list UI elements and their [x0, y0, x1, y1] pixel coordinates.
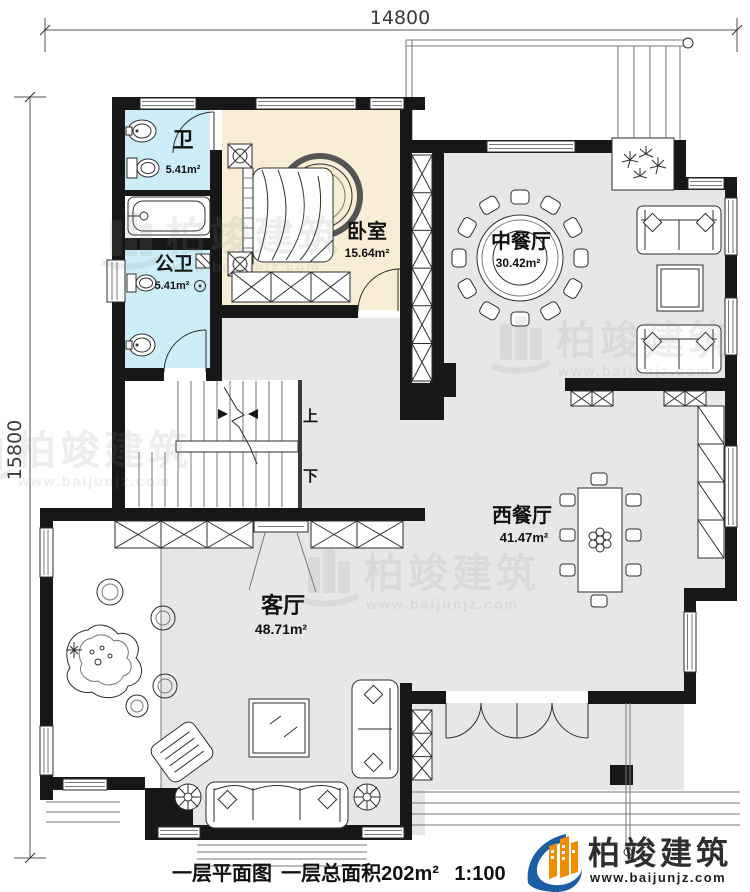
toilet: [127, 158, 159, 178]
shaft-cabinet: [412, 155, 432, 381]
dimension-top: 14800: [40, 7, 742, 52]
wardrobe: [232, 272, 350, 302]
coffee-table: [249, 699, 309, 757]
window: [40, 528, 53, 577]
toilet: [127, 274, 156, 292]
svg-text:www.baijunjz.com: www.baijunjz.com: [557, 363, 711, 379]
room-label-living: 客厅: [261, 593, 305, 618]
window: [684, 612, 696, 672]
room-area-dining-western: 41.47m²: [500, 530, 549, 545]
sofa-two-seat: [352, 680, 398, 778]
brand-website: www.baijunjz.com: [589, 870, 726, 885]
entry-shoe-cabinet: [412, 710, 432, 780]
room-label-dining-chinese: 中餐厅: [491, 229, 551, 253]
plan-title: 一层平面图: [172, 862, 272, 885]
dining-sofa: [637, 206, 721, 254]
room-label-dining-western: 西餐厅: [492, 503, 552, 527]
room-area-bedroom: 15.64m²: [345, 246, 390, 260]
dimension-top-label: 14800: [370, 7, 430, 29]
window: [256, 98, 356, 109]
svg-text:www.baijunjz.com: www.baijunjz.com: [17, 473, 171, 489]
svg-text:www.baijunjz.com: www.baijunjz.com: [167, 259, 321, 275]
window: [688, 178, 724, 189]
dining-side-table: [657, 265, 703, 311]
room-area-bath-public: 5.41m²: [155, 280, 190, 292]
room-area-living: 48.71m²: [255, 621, 307, 637]
west-steps: [46, 802, 120, 822]
svg-text:www.baijunjz.com: www.baijunjz.com: [365, 596, 519, 612]
rock-garden: [66, 579, 177, 717]
side-table: [175, 784, 201, 810]
nightstand: [228, 144, 252, 168]
svg-text:柏竣建筑: 柏竣建筑: [166, 215, 342, 259]
watermark: 柏竣建筑 www.baijunjz.com: [0, 426, 192, 489]
floor-plan-drawing: 14800 15800: [0, 0, 750, 892]
window: [362, 827, 404, 838]
room-label-bath-top: 卫: [173, 129, 194, 152]
window: [725, 446, 737, 527]
room-area-dining-chinese: 30.42m²: [496, 256, 541, 270]
brand-logo: 柏竣建筑 www.baijunjz.com: [528, 834, 732, 892]
window: [158, 827, 200, 838]
total-area-label: 一层总面积202m²: [281, 861, 439, 885]
window: [140, 98, 196, 109]
room-label-bedroom: 卧室: [347, 219, 387, 243]
terrace-railing: [406, 38, 693, 150]
stair-down-label: 下: [303, 468, 318, 485]
window: [40, 726, 53, 775]
svg-text:柏竣建筑: 柏竣建筑: [556, 319, 732, 363]
window: [63, 779, 107, 790]
floor-plan-sheet: 14800 15800: [0, 0, 750, 892]
plant-box: [612, 138, 674, 190]
window: [725, 198, 737, 255]
stair-up-label: 上: [303, 408, 318, 425]
sofa-three-seat: [206, 782, 348, 828]
side-table: [354, 784, 380, 810]
window: [487, 141, 575, 152]
svg-text:柏竣建筑: 柏竣建筑: [364, 552, 540, 596]
scale-label: 1:100: [454, 863, 505, 885]
brand-name: 柏竣建筑: [588, 835, 732, 871]
svg-text:柏竣建筑: 柏竣建筑: [16, 429, 192, 473]
title-block: 一层平面图 一层总面积202m² 1:100: [172, 861, 506, 885]
brand-logo-icon: [528, 834, 582, 892]
sideboard-cabinet: [698, 406, 724, 558]
stair-rail: [176, 441, 298, 452]
window: [370, 98, 404, 109]
room-area-bath-top: 5.41m²: [166, 164, 201, 176]
west-dining-table: [578, 488, 622, 592]
